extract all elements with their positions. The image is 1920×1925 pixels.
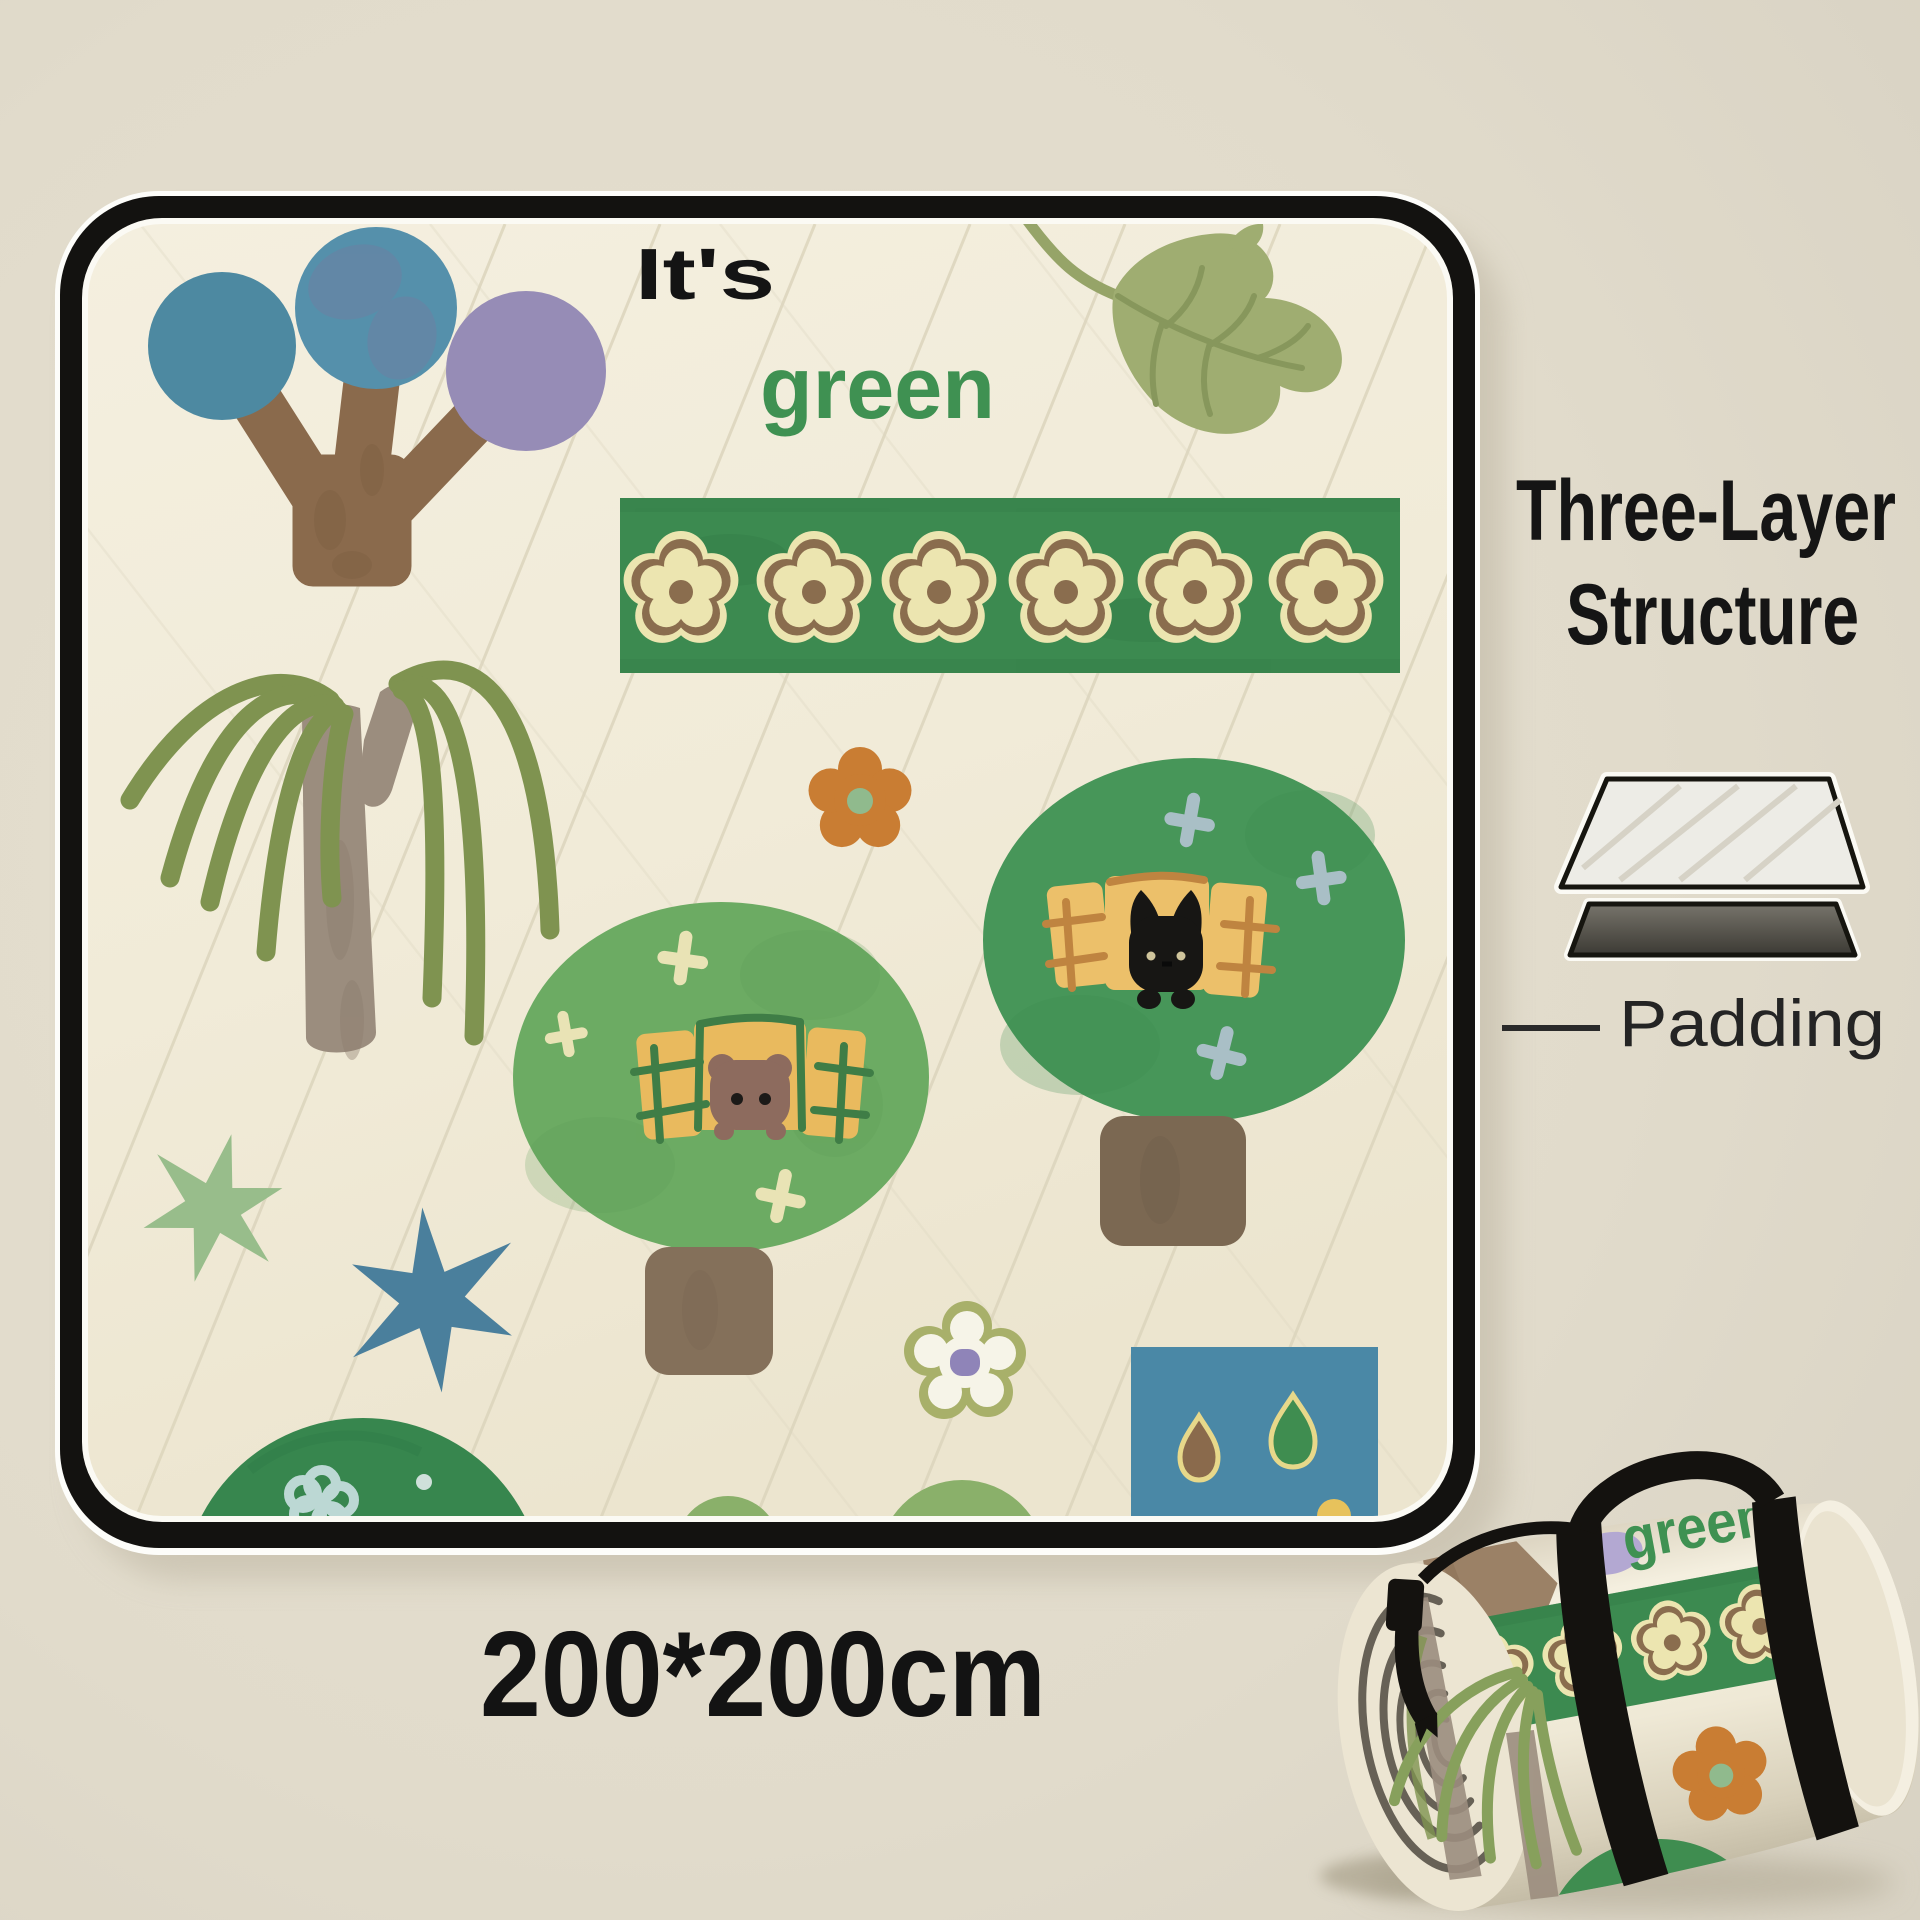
svg-text:Three-Layer: Three-Layer [1516, 463, 1896, 559]
svg-text:green: green [760, 338, 995, 437]
svg-text:200*200cm: 200*200cm [480, 1606, 1046, 1742]
svg-text:Structure: Structure [1566, 567, 1859, 663]
svg-text:Padding: Padding [1619, 986, 1885, 1060]
svg-text:It's: It's [635, 235, 775, 315]
